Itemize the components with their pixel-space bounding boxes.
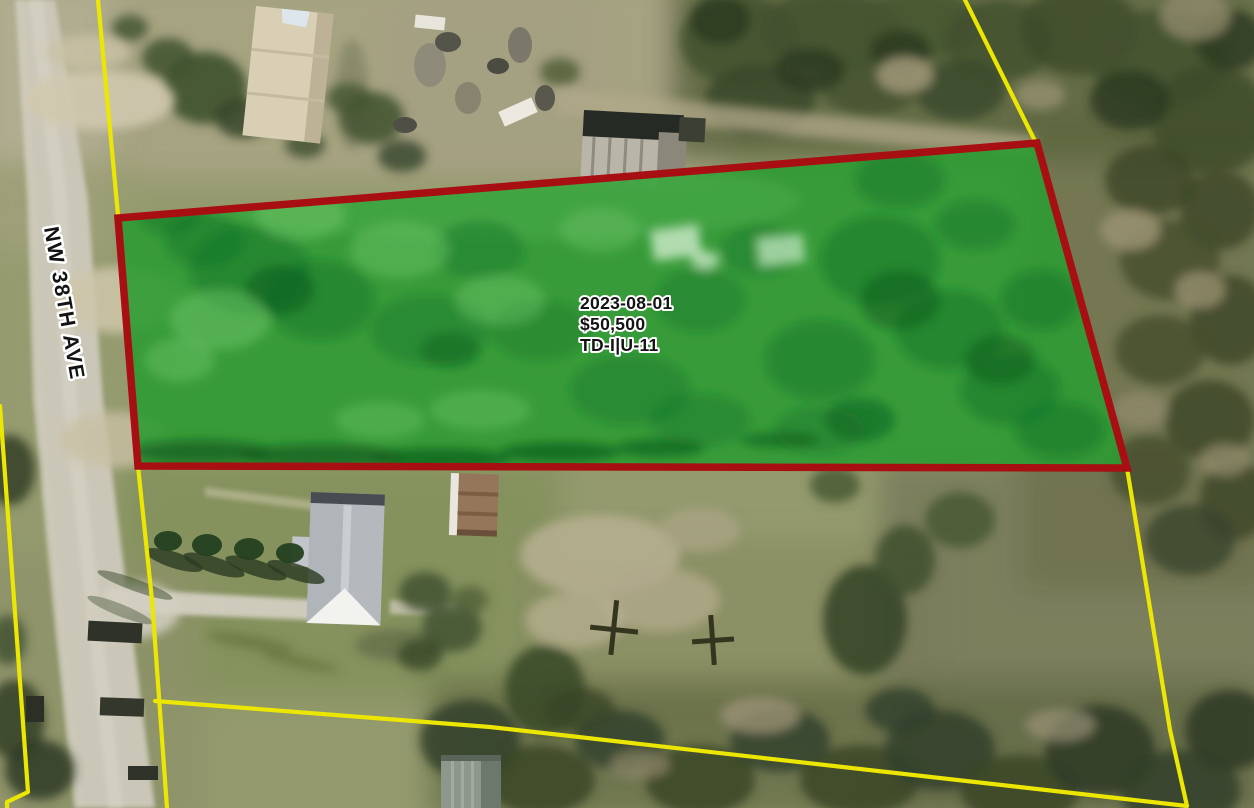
shed-brown-building (449, 473, 499, 537)
building-bottom-center (441, 755, 501, 808)
aerial-map[interactable]: NW 38TH AVE 2023-08-01 $50,500 TD-I|U-11 (0, 0, 1254, 808)
parcel-use-code: TD-I|U-11 (580, 335, 659, 355)
map-viewport[interactable]: NW 38TH AVE 2023-08-01 $50,500 TD-I|U-11 (0, 0, 1254, 808)
parcel-sale-date: 2023-08-01 (580, 293, 673, 313)
parcel-sale-price: $50,500 (580, 314, 645, 334)
